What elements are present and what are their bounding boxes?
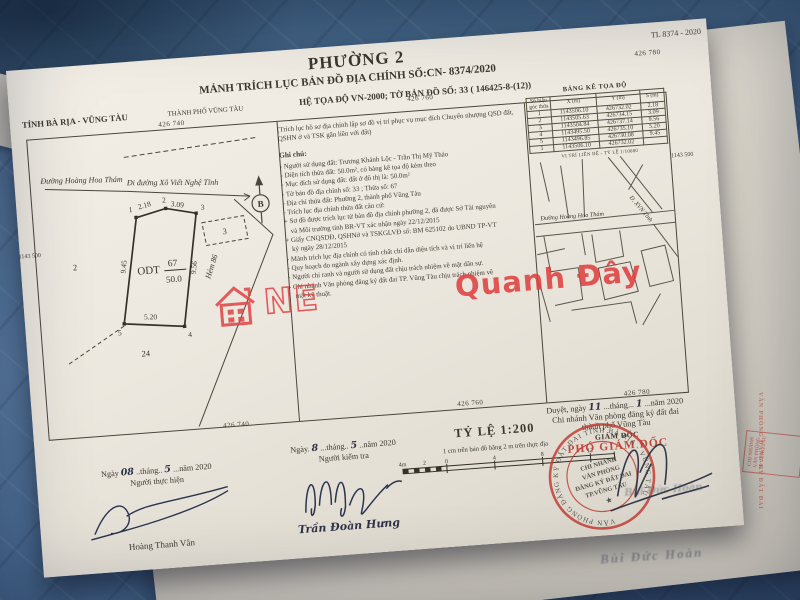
scale-tick-label: 4m	[399, 462, 407, 469]
cell: 1	[530, 145, 555, 154]
date-printed: ...năm 2020	[173, 462, 212, 474]
col-header-corner-id: Số hiệu góc thửa	[526, 97, 551, 112]
coordinate-table: Số hiệu góc thửa X (m) Y (m) S (m) 11143…	[525, 88, 668, 155]
edge-length-2-3: 3.09	[170, 199, 184, 209]
date-handwritten-month: 5	[350, 440, 357, 451]
date-printed: Ngày.	[290, 444, 310, 454]
grid-label-1143-500-right: 1143 500	[671, 152, 695, 160]
vertex-label-2: 2	[162, 195, 167, 204]
province-label: TỈNH BÀ RỊA - VŨNG TÀU	[22, 112, 128, 130]
director-signature	[586, 411, 723, 520]
neighbor-parcel-right: 3	[222, 226, 227, 236]
vertex-label-1: 1	[128, 205, 133, 214]
edge-length-5-4: 5.20	[144, 312, 157, 321]
date-handwritten-day: 08	[120, 467, 134, 479]
cell	[643, 136, 667, 145]
date-printed: ..tháng..	[136, 465, 163, 476]
photo-of-land-document: VĂN PHÒNG ĐĂNG KÝ ĐẤT ĐAI CHI NHÁNH VĂN …	[0, 0, 800, 600]
grid-label-426-760-top: 426 760	[407, 93, 434, 103]
edge-length-1-5: 9.45	[119, 260, 129, 274]
edge-length-1-2: 2.18	[137, 199, 152, 211]
date-handwritten-month: 5	[164, 464, 171, 475]
parcel-sketch-map: Đường Hoàng Hoa Thám Đi đường Xô Viết Ng…	[27, 122, 299, 438]
land-use-code: ODT	[137, 264, 161, 278]
edge-length-3-4: 9.56	[189, 260, 199, 274]
watermark-house-icon	[210, 282, 259, 328]
doc-reference: TL 8374 - 2020	[593, 27, 701, 44]
grid-label-426-780-top: 426 780	[634, 48, 661, 58]
alley-name: Hẻm 86	[203, 253, 220, 281]
city-label: THÀNH PHỐ VŨNG TÀU	[167, 105, 243, 118]
under-sheet-stamp-box: CHI NHÁNH VĂN PHÒNG TP VŨNG TÀU	[742, 430, 800, 478]
street-name-hoang-hoa-tham: Đường Hoàng Hoa Thám	[39, 175, 123, 186]
executor-block: Ngày 08 ..tháng.. 5 ...năm 2020 Người th…	[66, 458, 252, 556]
vertex-label-5: 5	[118, 328, 123, 337]
north-letter: B	[257, 199, 264, 209]
date-printed: Ngày	[101, 469, 119, 479]
checker-signature	[284, 457, 408, 522]
neighbor-parcel-bottom: 24	[141, 348, 151, 359]
date-printed: ..năm 2020	[359, 438, 396, 450]
vertex-label-4: 4	[188, 330, 193, 339]
scale-tick-label: 2	[423, 461, 426, 467]
vertex-label-3: 3	[200, 203, 205, 212]
coordinate-column: BẢNG KÊ TỌA ĐỘ Số hiệu góc thửa X (m) Y …	[525, 79, 683, 340]
executor-signature	[78, 480, 241, 544]
date-printed: ...tháng..	[320, 441, 349, 452]
parcel-inner-label: ODT 67 50.0	[137, 258, 188, 287]
street-direction-xo-viet-nghe-tinh: Đi đường Xô Viết Nghệ Tĩnh	[126, 178, 218, 187]
neighbor-parcel-left: 2	[72, 262, 77, 272]
parcel-area: 50.0	[166, 273, 183, 284]
location-minimap: Đường Hoàng Hoa Thám Đ. XVN Tĩnh	[530, 153, 683, 335]
parcel-number: 67	[168, 259, 178, 270]
watermark-prefix: NE	[262, 278, 321, 323]
document-paper: PHƯỜNG 2 MẢNH TRÍCH LỤC BẢN ĐỒ ĐỊA CHÍNH…	[6, 18, 744, 577]
date-handwritten-day: 8	[311, 443, 318, 454]
